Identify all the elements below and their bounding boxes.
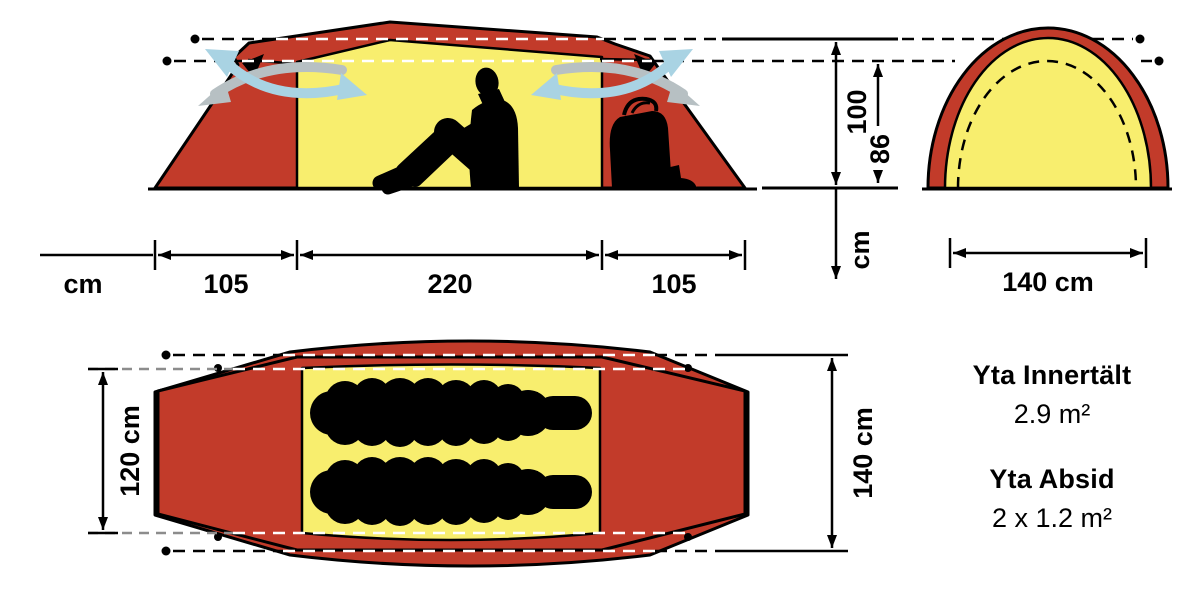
- end-width-dimension: 140 cm: [950, 238, 1146, 297]
- inner-height-label: 86: [865, 134, 895, 164]
- height-dimension: 100 86 cm: [762, 42, 898, 279]
- length-dimension: cm 105 220 105: [40, 240, 745, 299]
- outer-width-dimension: 140 cm: [832, 358, 878, 548]
- vestibule-area-value: 2 x 1.2 m²: [938, 503, 1166, 534]
- top-view: 120 cm 140 cm: [88, 341, 878, 566]
- height-unit-label: cm: [845, 230, 875, 269]
- guyline-point: [684, 533, 692, 541]
- inner-width-label: 120 cm: [115, 405, 145, 497]
- inner-tent-area-value: 2.9 m²: [938, 399, 1166, 430]
- outer-width-label: 140 cm: [848, 407, 878, 499]
- inner-tent-area-label: Yta Innertält: [938, 360, 1166, 391]
- inner-length-label: 220: [427, 269, 472, 299]
- vestibule-width-label: 105: [203, 269, 248, 299]
- length-unit-label: cm: [63, 269, 102, 299]
- area-specs: Yta Innertält 2.9 m² Yta Absid 2 x 1.2 m…: [938, 360, 1166, 534]
- inner-width-dimension: 120 cm: [88, 369, 145, 533]
- tent-spec-diagram: cm 105 220 105 100 86 cm 140 cm: [0, 0, 1200, 602]
- guyline-point: [684, 364, 692, 372]
- vestibule-area-label: Yta Absid: [938, 464, 1166, 495]
- end-view: 140 cm: [922, 28, 1172, 297]
- end-width-label: 140 cm: [1002, 267, 1094, 297]
- outer-height-label: 100: [842, 89, 872, 134]
- vestibule-width-label: 105: [651, 269, 696, 299]
